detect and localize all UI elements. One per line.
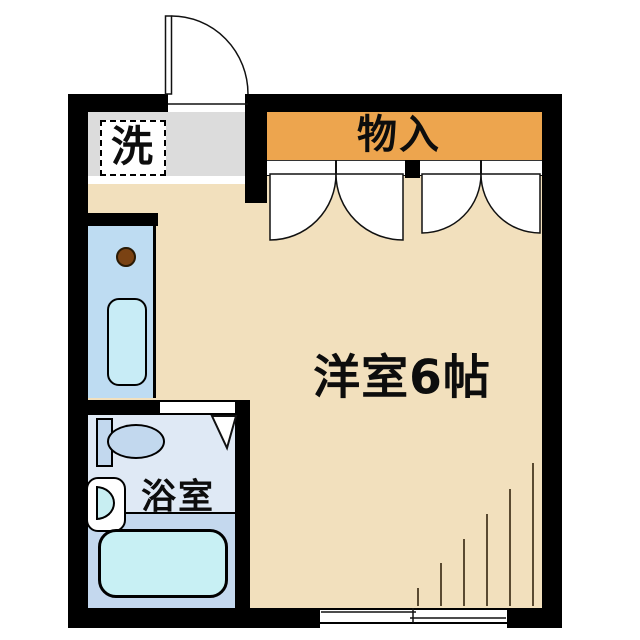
bathroom-label: 浴室 — [141, 481, 215, 516]
kitchen-top-wall — [88, 213, 158, 226]
bathroom-top-wall — [88, 400, 160, 415]
bottom-wall-right — [507, 608, 562, 628]
bottom-wall-left — [68, 608, 320, 628]
bathroom-door — [160, 400, 235, 415]
entrance-step — [88, 176, 245, 184]
entrance-door-arc-icon — [172, 16, 249, 94]
toilet-bowl-icon — [107, 424, 165, 459]
kitchen-sink — [107, 298, 147, 386]
floor-plan: 洗 物入 洋室6帖 浴室 — [0, 0, 640, 640]
laundry-label: 洗 — [111, 126, 153, 168]
gas-burner-icon — [116, 247, 136, 267]
closet-center-post — [405, 160, 420, 178]
right-wall — [542, 94, 562, 628]
bathroom-right-wall — [235, 400, 250, 608]
left-wall — [68, 94, 88, 628]
entrance-doorway — [168, 94, 248, 112]
bathtub-icon — [98, 529, 228, 598]
storage-label: 物入 — [357, 115, 441, 155]
hall-closet-wall — [245, 94, 267, 203]
top-wall-right — [248, 94, 562, 112]
entrance-door-leaf-icon — [166, 16, 172, 94]
western-room-label: 洋室6帖 — [313, 355, 491, 402]
sliding-window — [320, 608, 507, 624]
